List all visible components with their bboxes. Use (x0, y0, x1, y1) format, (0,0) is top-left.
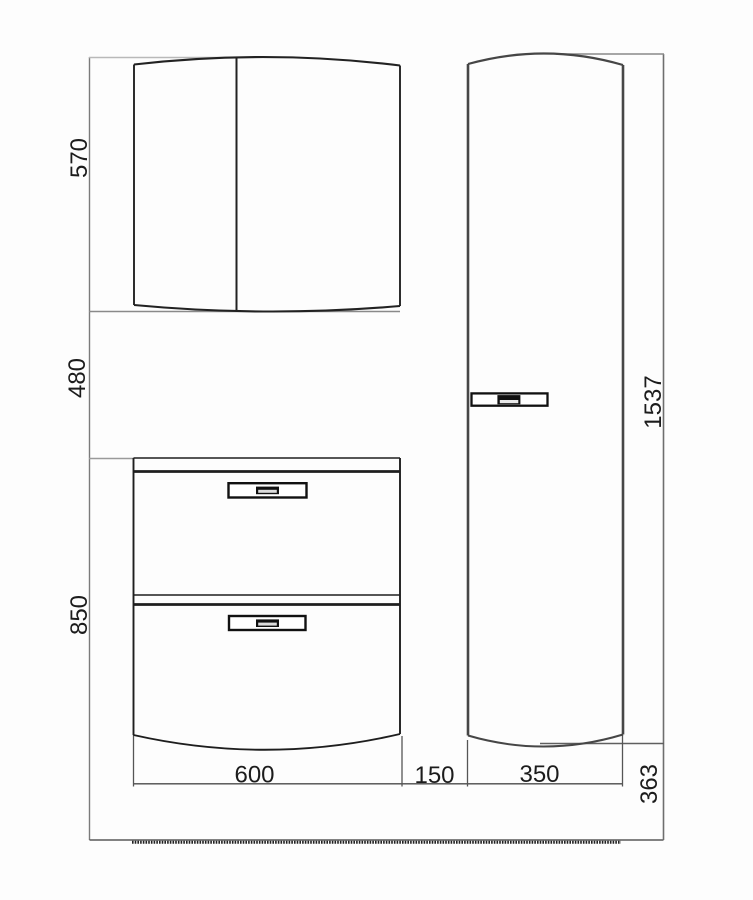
svg-text:850: 850 (66, 595, 93, 635)
svg-text:600: 600 (234, 762, 274, 789)
svg-text:350: 350 (519, 761, 559, 788)
svg-text:1537: 1537 (640, 375, 667, 428)
svg-text:570: 570 (66, 138, 93, 178)
svg-text:480: 480 (64, 358, 91, 398)
svg-text:150: 150 (414, 762, 454, 789)
svg-text:363: 363 (636, 764, 663, 804)
